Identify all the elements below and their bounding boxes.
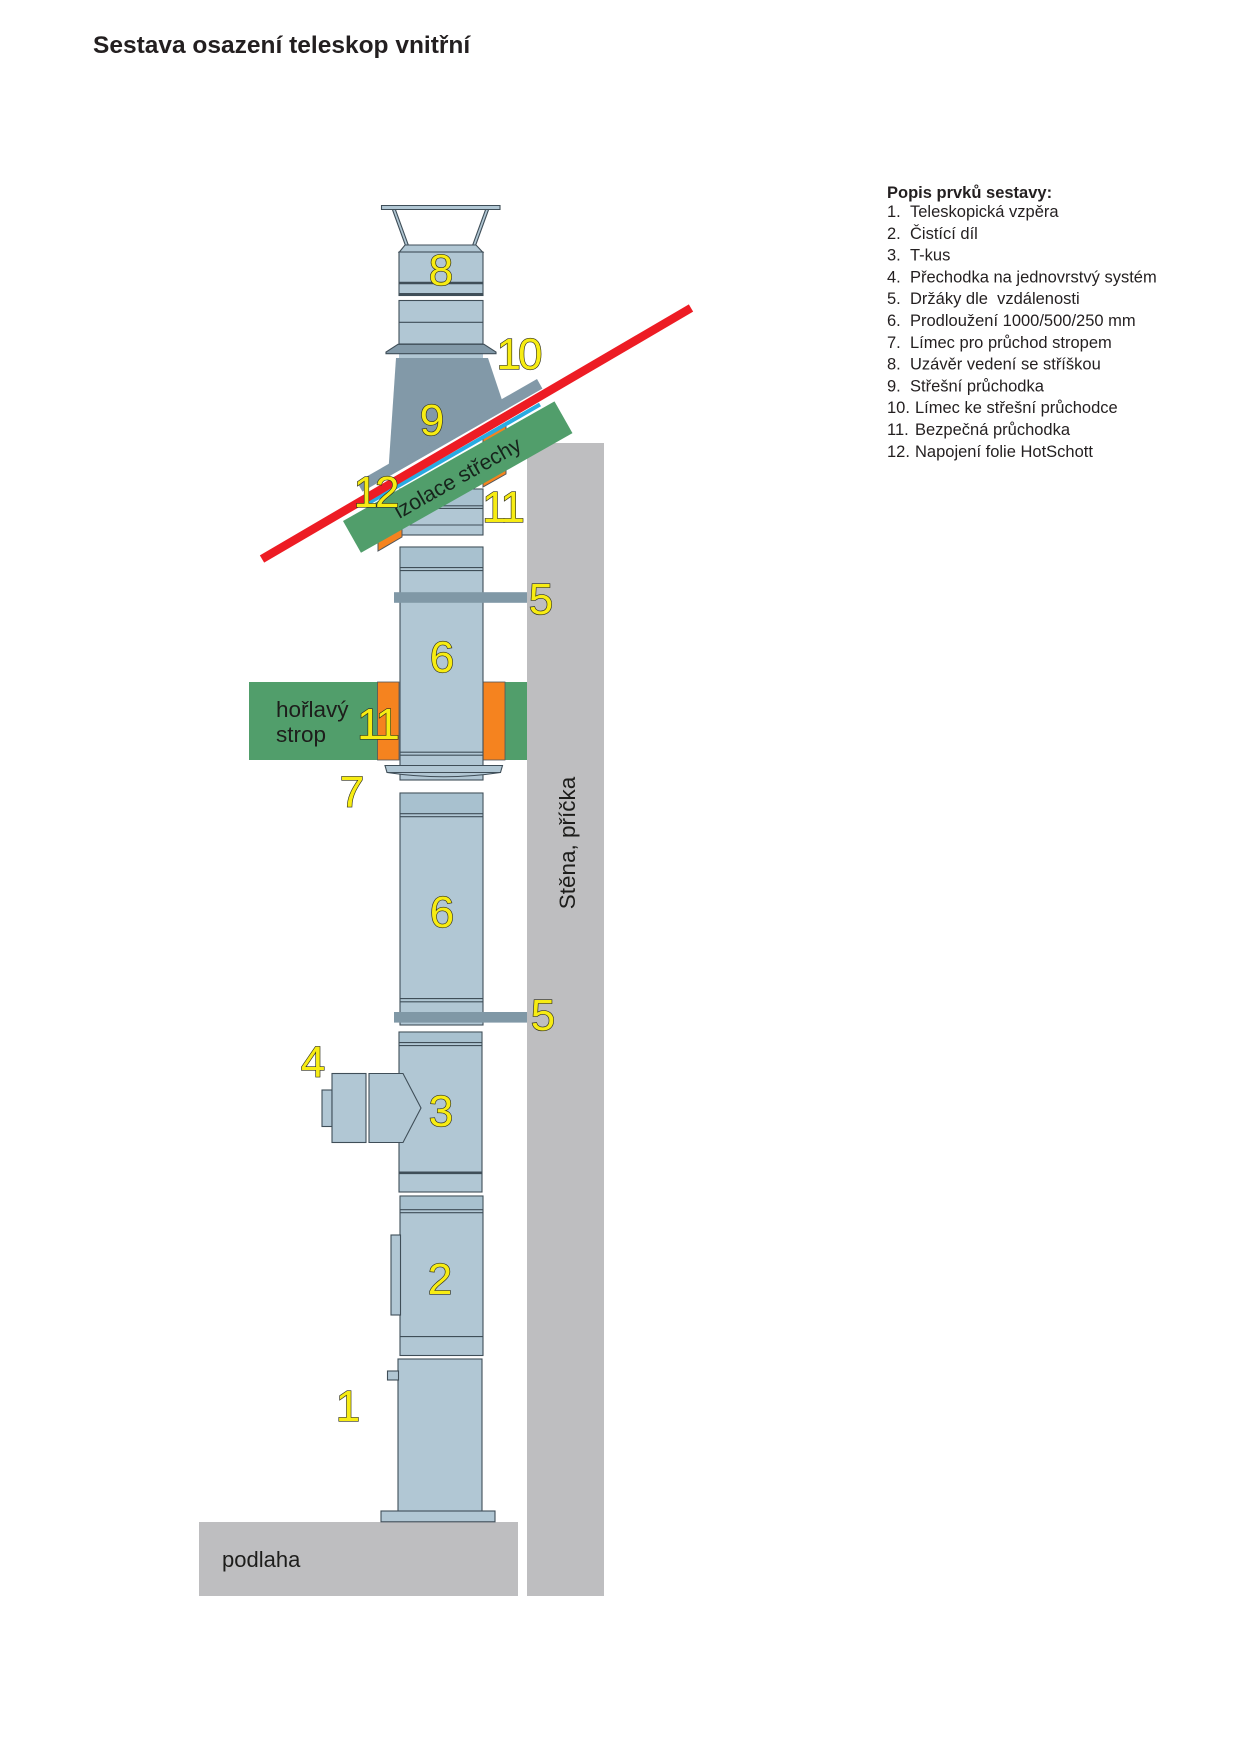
svg-text:Čistící díl: Čistící díl: [910, 224, 978, 243]
svg-text:2: 2: [428, 1255, 452, 1304]
svg-text:11: 11: [482, 483, 523, 532]
svg-text:Popis prvků sestavy:: Popis prvků sestavy:: [887, 184, 1052, 202]
svg-text:5.: 5.: [887, 290, 901, 308]
svg-text:6.: 6.: [887, 312, 901, 330]
svg-text:8.: 8.: [887, 356, 901, 374]
svg-text:2.: 2.: [887, 225, 901, 243]
svg-text:6: 6: [430, 633, 454, 682]
svg-text:7: 7: [340, 768, 364, 817]
svg-text:T-kus: T-kus: [910, 247, 950, 265]
svg-text:Střešní průchodka: Střešní průchodka: [910, 377, 1045, 395]
svg-text:1: 1: [336, 1382, 360, 1431]
svg-text:4.: 4.: [887, 268, 901, 286]
svg-text:3: 3: [429, 1087, 453, 1136]
svg-text:5: 5: [529, 575, 553, 624]
svg-text:1.: 1.: [887, 203, 901, 221]
svg-text:hořlavý: hořlavý: [276, 697, 349, 722]
svg-text:6: 6: [430, 888, 454, 937]
svg-text:10: 10: [497, 330, 541, 379]
svg-text:12.: 12.: [887, 443, 910, 461]
svg-text:Teleskopická vzpěra: Teleskopická vzpěra: [910, 203, 1059, 221]
svg-text:Sestava osazení teleskop vnitř: Sestava osazení teleskop vnitřní: [93, 32, 471, 59]
svg-text:strop: strop: [276, 722, 326, 747]
svg-text:8: 8: [429, 246, 453, 295]
svg-text:Bezpečná průchodka: Bezpečná průchodka: [915, 421, 1071, 439]
svg-text:podlaha: podlaha: [222, 1547, 301, 1572]
svg-text:9: 9: [420, 396, 444, 445]
svg-text:12: 12: [354, 468, 398, 517]
svg-text:Límec pro průchod stropem: Límec pro průchod stropem: [910, 334, 1112, 352]
svg-text:11: 11: [357, 700, 398, 749]
svg-text:Napojení folie HotSchott: Napojení folie HotSchott: [915, 443, 1093, 461]
svg-text:Držáky dle vzdálenosti: Držáky dle vzdálenosti: [910, 290, 1080, 308]
svg-text:7.: 7.: [887, 334, 901, 352]
svg-text:9.: 9.: [887, 377, 901, 395]
svg-text:Přechodka na jednovrstvý systé: Přechodka na jednovrstvý systém: [910, 268, 1157, 286]
svg-text:11.: 11.: [887, 421, 909, 439]
svg-text:Prodloužení 1000/500/250 mm: Prodloužení 1000/500/250 mm: [910, 312, 1136, 330]
svg-text:Stěna, příčka: Stěna, příčka: [555, 776, 580, 909]
svg-text:Límec ke střešní průchodce: Límec ke střešní průchodce: [915, 399, 1118, 417]
svg-text:5: 5: [531, 991, 555, 1040]
svg-text:10.: 10.: [887, 399, 910, 417]
svg-text:3.: 3.: [887, 247, 901, 265]
svg-text:Uzávěr vedení se stříškou: Uzávěr vedení se stříškou: [910, 356, 1101, 374]
svg-text:4: 4: [301, 1038, 325, 1087]
